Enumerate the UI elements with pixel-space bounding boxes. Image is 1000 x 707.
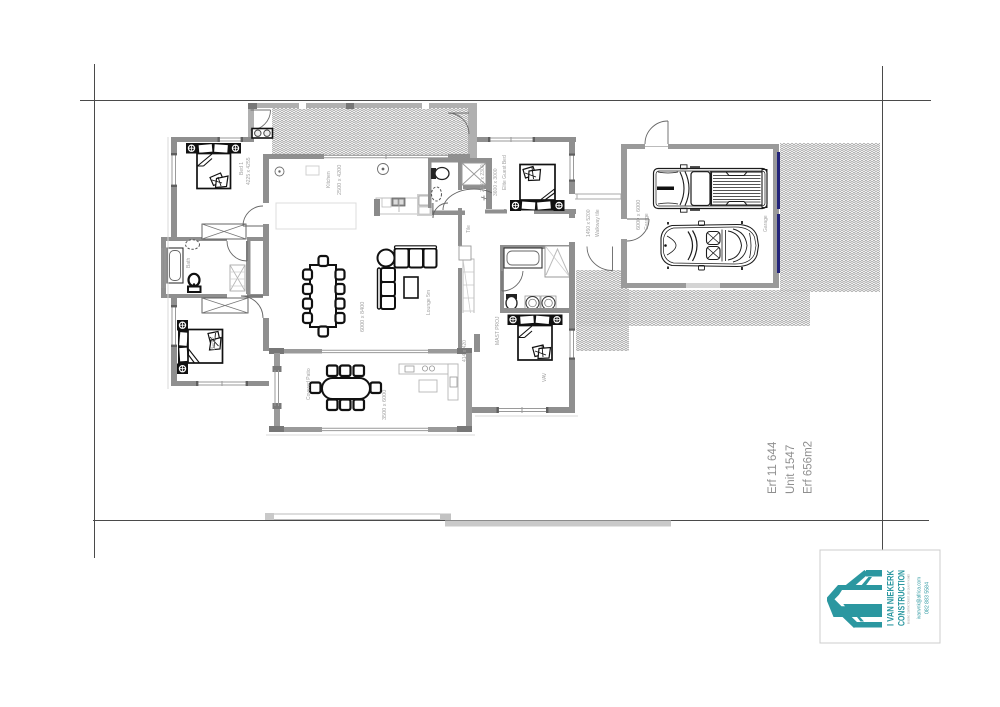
- svg-text:ivanvnk@africa.com: ivanvnk@africa.com: [917, 577, 923, 619]
- svg-text:2500 x 4200: 2500 x 4200: [337, 165, 343, 195]
- svg-text:Bath: Bath: [186, 257, 192, 268]
- svg-text:2230 x 2300: 2230 x 2300: [480, 164, 486, 192]
- svg-text:6000 x 6000: 6000 x 6000: [636, 200, 642, 230]
- svg-text:Covered Patio: Covered Patio: [306, 368, 312, 400]
- svg-text:1450 x 5200: 1450 x 5200: [586, 209, 592, 237]
- svg-text:Kitchen: Kitchen: [326, 171, 332, 188]
- svg-text:BUILDING CONTRACTOR EST. 1992: BUILDING CONTRACTOR EST. 1992 QUALITY HO…: [907, 574, 911, 624]
- svg-text:4225 x 4255: 4225 x 4255: [246, 157, 252, 185]
- svg-text:Lounge 5m: Lounge 5m: [426, 290, 432, 315]
- svg-text:3500 x 6000: 3500 x 6000: [382, 390, 388, 420]
- svg-text:VAV: VAV: [542, 372, 548, 382]
- svg-text:I VAN NIEKERK: I VAN NIEKERK: [886, 570, 896, 626]
- svg-text:Garage: Garage: [763, 215, 769, 232]
- svg-text:6000 x 8400: 6000 x 8400: [360, 302, 366, 332]
- svg-text:Erf 656m2: Erf 656m2: [803, 441, 815, 494]
- svg-text:082 883 5584: 082 883 5584: [925, 582, 931, 614]
- svg-text:Erf 11 644: Erf 11 644: [767, 441, 779, 494]
- svg-text:MAST PROJ: MAST PROJ: [495, 316, 501, 345]
- svg-text:Tile: Tile: [466, 225, 472, 233]
- svg-text:Garage: Garage: [644, 213, 650, 230]
- svg-text:414 x 420: 414 x 420: [462, 340, 468, 362]
- svg-text:Bed 2: Bed 2: [211, 337, 217, 350]
- svg-text:CONSTRUCTION: CONSTRUCTION: [897, 570, 907, 626]
- svg-text:Bed 1: Bed 1: [239, 162, 245, 175]
- svg-text:Unit 1547: Unit 1547: [785, 445, 797, 494]
- svg-text:3600 x 3000: 3600 x 3000: [493, 168, 499, 196]
- svg-text:Elite Guest Bed: Elite Guest Bed: [502, 155, 508, 190]
- svg-text:Walkway tile: Walkway tile: [595, 209, 601, 237]
